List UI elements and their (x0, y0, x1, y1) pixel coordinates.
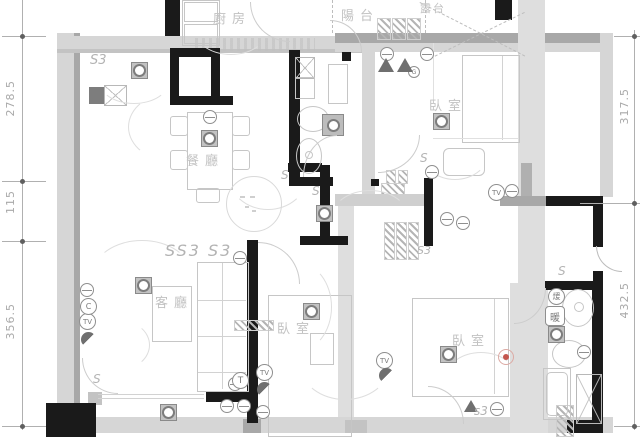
ceiling-light-icon (131, 62, 148, 79)
switch-label: S (312, 184, 320, 198)
switch-label: s3 (474, 404, 488, 418)
note-circle (226, 176, 282, 232)
heater-icon: 煖 (548, 288, 565, 305)
room-label-dining: 餐廳 (186, 150, 224, 169)
wall-balcony-divider-light (335, 43, 603, 52)
switch-label: S (558, 264, 566, 278)
wall-shaft-right (424, 178, 433, 246)
column-bottom-left (46, 403, 96, 437)
hatch-balcony-3 (407, 18, 421, 40)
dimension-dot (20, 179, 25, 184)
bath-pad-light-icon (322, 114, 344, 136)
switch-label: S3 (90, 53, 107, 68)
dim-label-left-top: 278.5 (4, 80, 17, 117)
dimension-line-left (22, 0, 23, 430)
dining-chair-5 (196, 188, 220, 203)
heater-icon: 暖 (545, 306, 565, 326)
outlet-icon (80, 283, 94, 297)
wall-terrace-divider (495, 0, 512, 20)
wire-curve (90, 320, 150, 370)
floor-plan: TV TV TV TV T C G 煖 暖 S3 SS3 S3 S3 s3 S … (0, 0, 640, 437)
outlet-icon (577, 345, 591, 359)
outlet-icon (233, 251, 247, 265)
balcony-rail-2 (98, 398, 204, 399)
dim-label-right-top: 317.5 (618, 88, 631, 125)
door-wedge-exterior (596, 246, 622, 272)
tv-outlet-icon: TV (376, 352, 393, 369)
room-label-living: 客廳 (155, 292, 193, 311)
wall-shaft-cap (500, 196, 548, 206)
half-moon-icon (257, 382, 272, 397)
ceiling-light-icon (201, 130, 218, 147)
wall-left-outer (57, 33, 74, 406)
balcony-rail-1 (98, 394, 204, 395)
dimension-dot (20, 424, 25, 429)
room-label-bedroom-top-right: 臥室 (429, 95, 467, 114)
dimension-dot (20, 34, 25, 39)
red-dot-marker (498, 349, 514, 365)
outlet-icon (203, 110, 217, 124)
wall-kitchen-bar (212, 96, 233, 105)
room-label-terrace: 露台 (420, 0, 446, 16)
wall-block-small-a (342, 52, 351, 61)
outlet-icon (490, 402, 504, 416)
outlet-icon (505, 184, 519, 198)
triangle-vent-icon (397, 58, 413, 72)
note-mark (240, 196, 245, 198)
dim-label-left-mid: 115 (4, 190, 17, 214)
outlet-icon (425, 165, 439, 179)
switch-label: S (420, 151, 428, 165)
wall-right-outer (600, 33, 613, 197)
outlet-icon (256, 405, 270, 419)
ceiling-light-icon (135, 277, 152, 294)
door-arc-bedroom-tr (378, 135, 420, 173)
panel-bath2 (576, 374, 602, 424)
switch-label: SS3 S3 (165, 241, 232, 260)
room-label-bedroom-bottom-right: 臥室 (452, 330, 490, 349)
half-moon-icon (81, 332, 96, 347)
wall-corridor (362, 50, 375, 198)
room-label-balcony: 陽台 (341, 5, 379, 24)
dim-label-right-bottom: 432.5 (618, 282, 631, 319)
bed-tr-pillow-line (502, 56, 503, 140)
wall-left-inner (74, 33, 80, 406)
tv-outlet-icon: TV (256, 364, 273, 381)
hatch-shaft-5 (398, 170, 408, 184)
wire-curve (330, 190, 410, 250)
wardrobe-top-right (328, 64, 348, 104)
dimension-line-right (634, 30, 635, 430)
sofa-arm (222, 263, 223, 389)
outlet-icon (420, 47, 434, 61)
room-label-bedroom-middle: 臥室 (277, 318, 315, 337)
dim-label-left-bottom: 356.5 (4, 303, 17, 340)
cable-outlet-icon: C (80, 298, 97, 315)
dining-chair-3 (232, 116, 250, 136)
dimension-dot (632, 424, 637, 429)
note-mark (250, 196, 255, 198)
wall-block-small-b (371, 179, 379, 186)
ceiling-light-icon (548, 326, 565, 343)
basin-bath2-drain (574, 302, 584, 312)
door-arc-balcony (330, 20, 362, 52)
triangle-vent-icon (378, 58, 394, 72)
note-mark (245, 206, 249, 208)
dimension-dot (632, 201, 637, 206)
wall-shaft-vertical (518, 0, 545, 292)
dimension-tick (580, 203, 640, 204)
ceiling-light-icon (316, 205, 333, 222)
dimension-dot (20, 239, 25, 244)
outlet-icon (440, 212, 454, 226)
half-moon-icon (379, 368, 394, 383)
tub-bath2-inner (546, 372, 568, 416)
switch-label: S (281, 168, 289, 182)
hatch-balcony-1 (377, 18, 391, 40)
tv-outlet-icon: TV (488, 184, 505, 201)
washer-icon (295, 57, 315, 79)
switch-label: S3 (417, 244, 431, 257)
tv-outlet-icon: TV (79, 313, 96, 330)
washer-base (295, 77, 315, 99)
ceiling-light-icon (433, 113, 450, 130)
switch-label: S (93, 372, 101, 386)
room-label-kitchen: 廚房 (213, 8, 251, 27)
outlet-icon (220, 399, 234, 413)
note-mark (252, 210, 256, 212)
wall-kitchen-top (165, 0, 180, 36)
outlet-icon (237, 399, 251, 413)
hatch-balcony-2 (392, 18, 406, 40)
ceiling-light-icon (160, 404, 177, 421)
outlet-icon (456, 216, 470, 230)
dimension-dot (632, 34, 637, 39)
thermostat-icon: T (232, 372, 249, 389)
hatch-shaft-4 (386, 170, 396, 184)
